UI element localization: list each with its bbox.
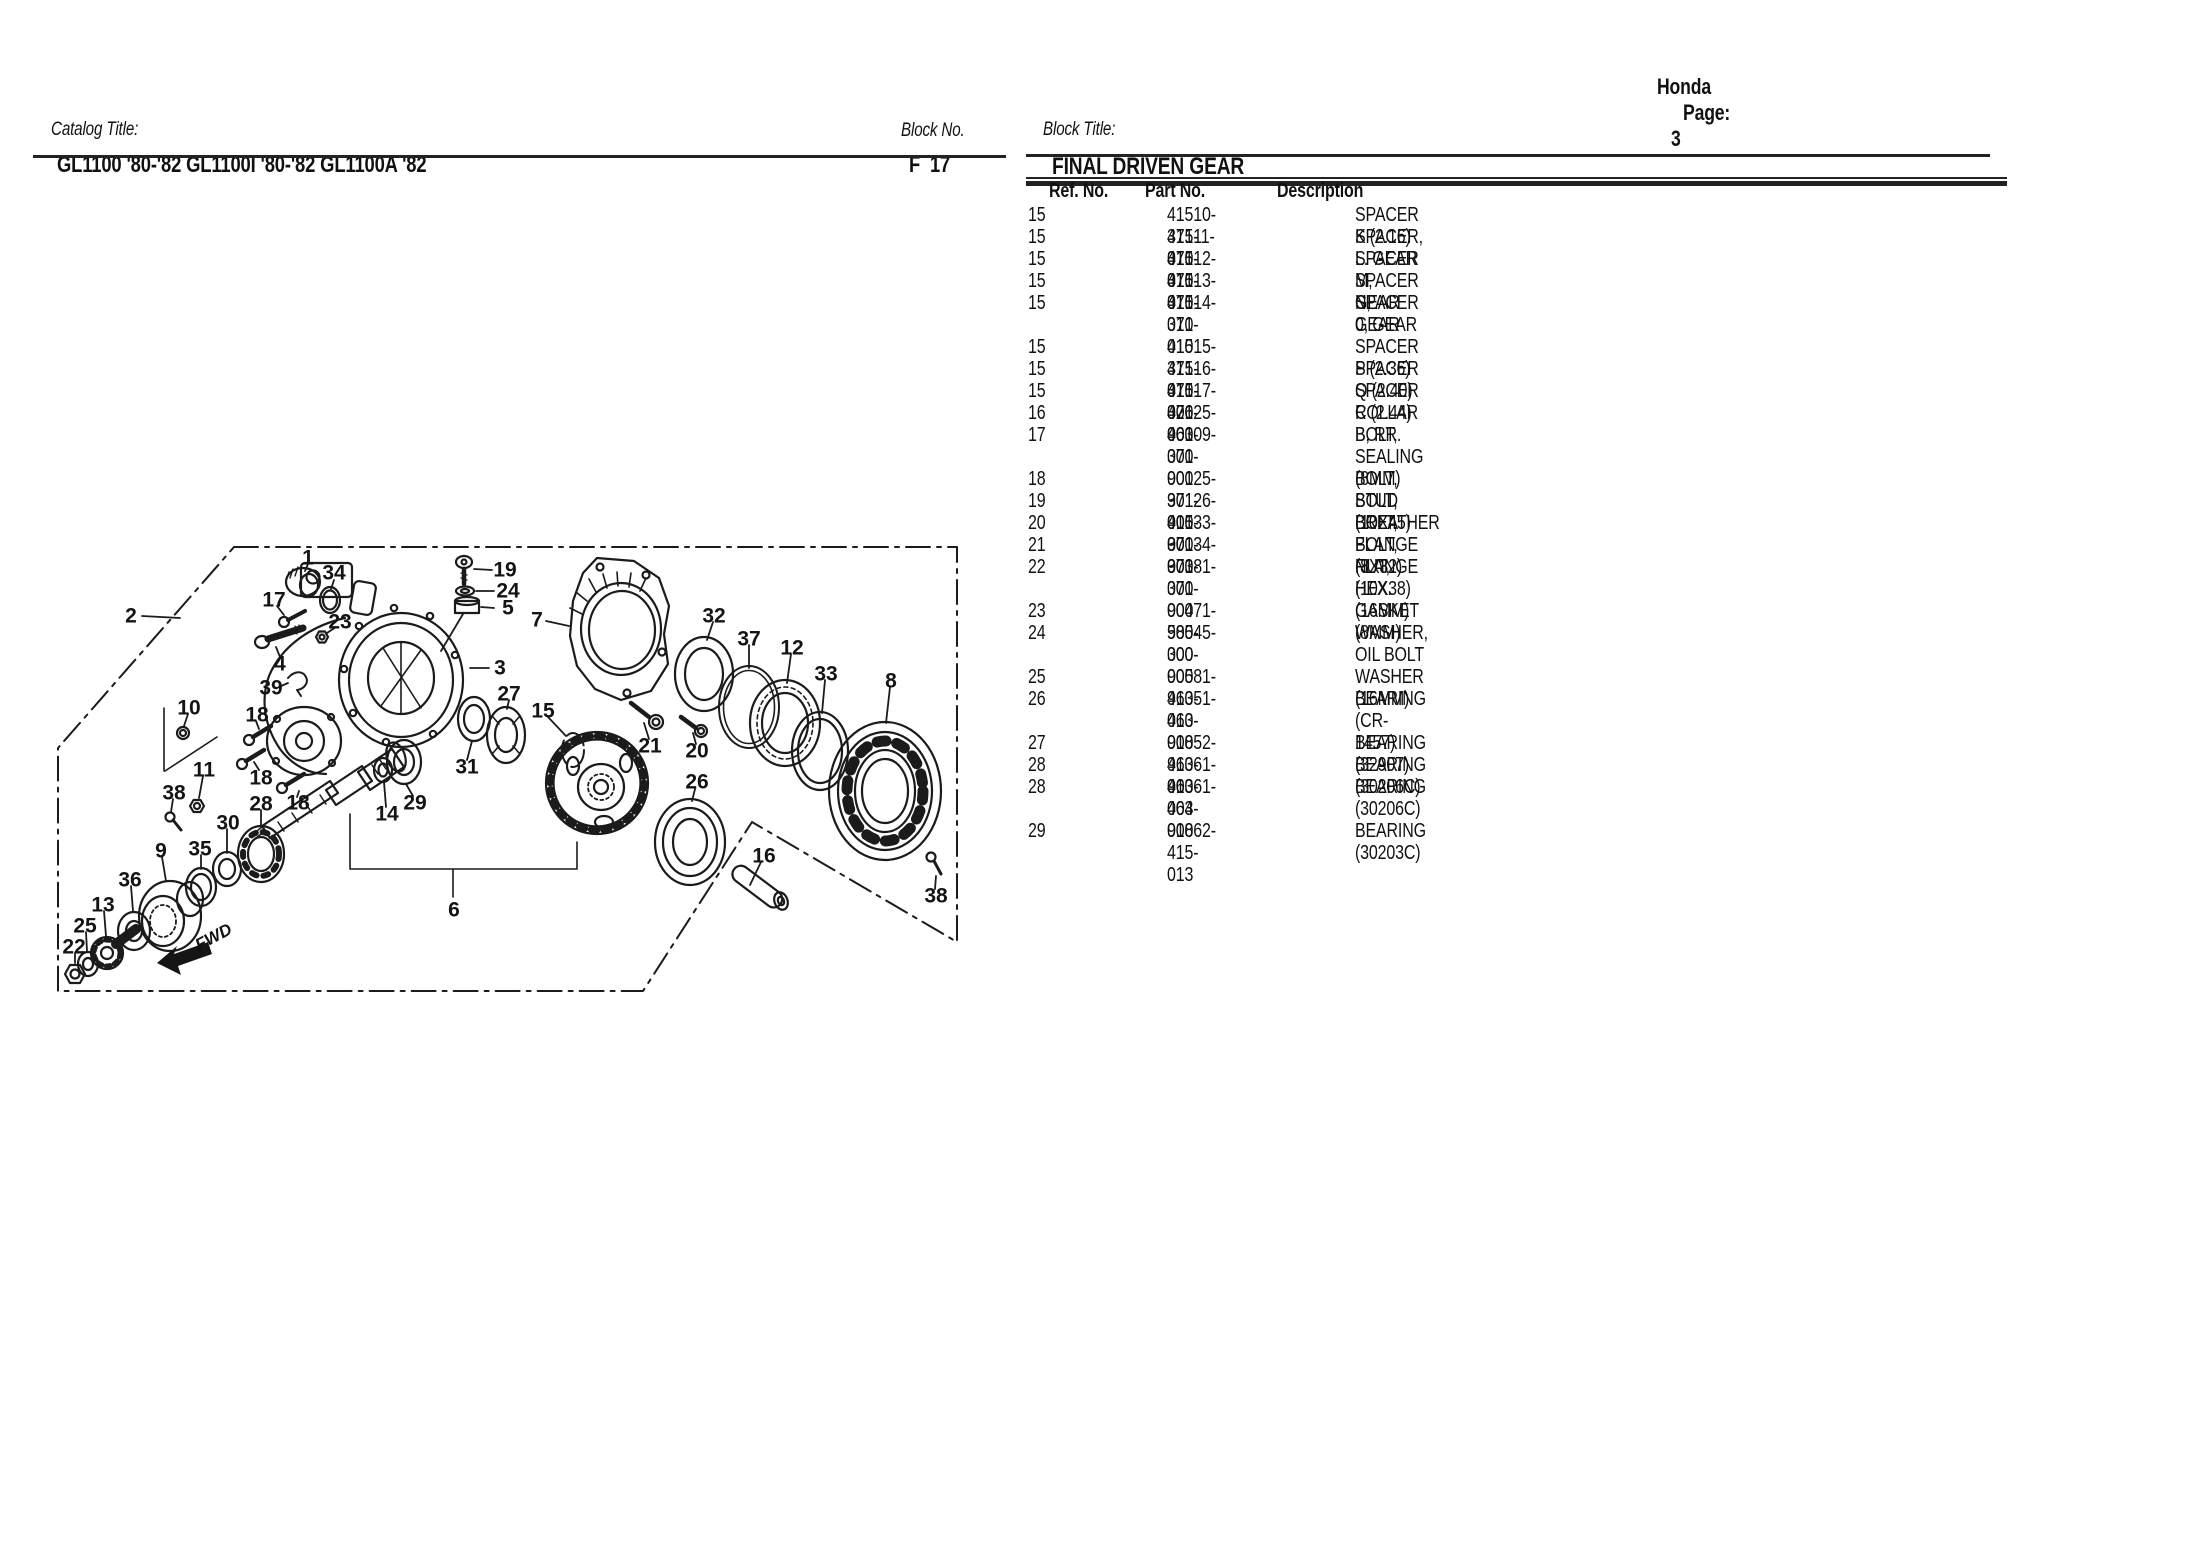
table-row: 2590581-463-010WASHER (16MM) — [0, 666, 2000, 688]
table-row: 1541513-371-010SPACER N, GEAR — [0, 270, 2000, 292]
part-number-label: 16 — [752, 845, 775, 868]
col-header-desc: Description — [1255, 157, 1385, 203]
table-row: 1990126-415-000BOLT, BREATHER — [0, 490, 2000, 512]
table-row: 1642625-463-000COLLAR B, RR. — [0, 402, 2000, 424]
table-row: 2691051-463-008BEARING (CR-1457) — [0, 688, 2000, 710]
table-row: 2991062-415-013BEARING (30203C) — [0, 820, 2000, 842]
table-row: 2791052-463-003BEARING (32907) — [0, 732, 2000, 754]
part-number-label: 9 — [155, 840, 167, 863]
table-row: 2290381-371-000NUT, HEX. (16MM) — [0, 556, 2000, 578]
page-number: 3 — [1671, 126, 1681, 152]
table-row: 1541514-371-010SPACER 0, GEAR — [0, 292, 2000, 314]
block-no: F 17 — [883, 124, 960, 178]
table-row: 1541515-371-010SPACER P (2.36) — [0, 336, 2000, 358]
group-spacer — [0, 578, 2000, 600]
table-row: 1541510-371-010SPACER K (2.16) — [0, 204, 2000, 226]
fwd-arrow: FWD — [157, 920, 235, 975]
part-number-label: 36 — [118, 869, 141, 892]
catalog-page: FWD 134172192457234339271015183237123381… — [0, 0, 2200, 1566]
part-number-label: 38 — [924, 885, 948, 908]
parts-list: 1541510-371-010SPACER K (2.16)1541511-37… — [0, 204, 2200, 842]
table-row: 1541516-371-000SPACER Q (2.40) — [0, 358, 2000, 380]
table-row: 2891061-463-008BEARING (30206C) — [0, 776, 2000, 798]
table-row: 1541517-371-000SPACER R (2.44) — [0, 380, 2000, 402]
part-number-label: 13 — [91, 894, 114, 917]
fwd-label: FWD — [192, 920, 235, 955]
part-number-label: 22 — [62, 936, 85, 959]
page-header: Honda Page: 3 — [1633, 48, 1742, 178]
group-spacer — [0, 314, 2000, 336]
table-row: 2390471-580-000GASKET (8MM) — [0, 600, 2000, 622]
page-label: Page: — [1683, 100, 1730, 126]
catalog-title: GL1100 '80-'82 GL1100I '80-'82 GL1100A '… — [31, 124, 518, 178]
table-row: 1541512-371-010SPACER M, GEAR — [0, 248, 2000, 270]
table-row: 1890125-371-000BOLT, STUD (10X45) — [0, 468, 2000, 490]
table-row: 1790109-371-000BOLT, SEALING (8MM) — [0, 424, 2000, 446]
header-rule-left — [33, 155, 1006, 158]
group-spacer — [0, 710, 2000, 732]
table-row: 2891061-463-004BEARING (30206C) — [0, 754, 2000, 776]
col-header-ref: Ref. No. — [1027, 157, 1123, 203]
part-number-label: 25 — [73, 915, 97, 938]
brand-name: Honda — [1657, 74, 1711, 100]
table-row: 2090133-371-000BOLT, FLANGE (8X32) — [0, 512, 2000, 534]
table-row: 1541511-371-010SPACER, L. GEAR — [0, 226, 2000, 248]
table-row: 2190134-371-000BOLT, FLANGE (10X38) — [0, 534, 2000, 556]
group-spacer — [0, 446, 2000, 468]
col-header-part: Part No. — [1123, 157, 1220, 203]
group-spacer — [0, 644, 2000, 666]
part-number-label: 6 — [448, 899, 460, 922]
group-spacer — [0, 798, 2000, 820]
table-row: 2490545-300-000WASHER, OIL BOLT — [0, 622, 2000, 644]
